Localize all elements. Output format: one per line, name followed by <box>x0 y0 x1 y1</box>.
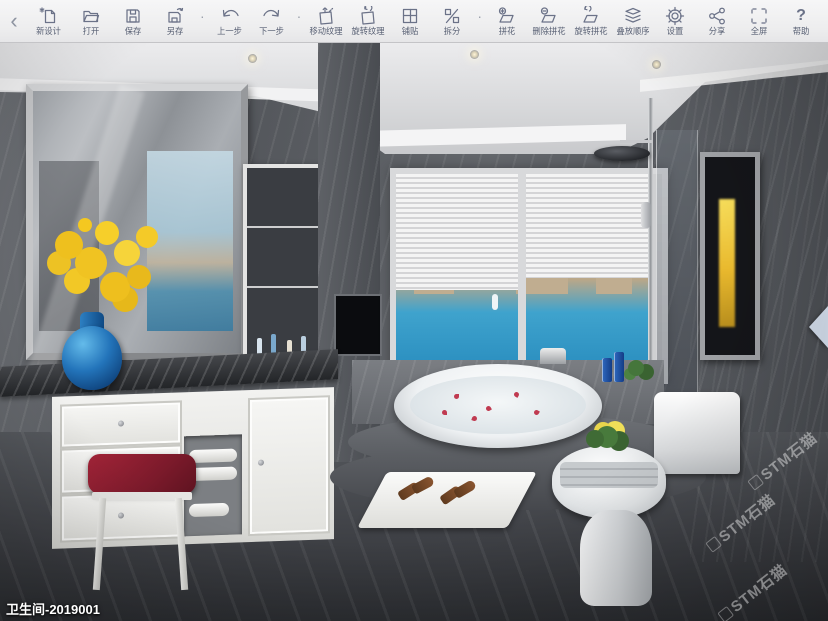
tv-inset <box>334 294 382 356</box>
stack-order-icon <box>622 5 644 26</box>
cabinet-shelf <box>247 286 321 288</box>
rotate-texture-icon <box>358 5 378 26</box>
rain-shower-head <box>594 146 650 161</box>
window-mullion <box>518 174 526 366</box>
toolbar-item-rotate-texture[interactable]: 旋转纹理 <box>347 0 389 42</box>
fountain <box>492 294 498 310</box>
toolbar-item-label: 另存 <box>167 26 184 36</box>
toolbar-item-label: 铺贴 <box>402 26 419 36</box>
toolbar-item-move-texture[interactable]: 移动纹理 <box>305 0 347 42</box>
mosaic-delete-icon <box>538 5 560 26</box>
wall-artwork <box>700 152 760 360</box>
fullscreen-icon <box>749 5 769 26</box>
toolbar-item-label: 移动纹理 <box>310 26 343 36</box>
toolbar-item-label: 删除拼花 <box>532 26 565 36</box>
shower-arm <box>620 140 652 143</box>
app-window: ‹ 新设计 打开 保存 另存 · <box>0 0 828 621</box>
blue-glass-bottle <box>614 352 624 382</box>
shower-pole <box>648 98 653 398</box>
towel-roll <box>189 503 229 517</box>
back-button[interactable]: ‹ <box>0 1 28 41</box>
yellow-flowers <box>78 218 92 232</box>
towel-roll <box>189 448 237 463</box>
towel-roll <box>189 466 237 481</box>
toolbar-item-label: 叠放顺序 <box>616 26 649 36</box>
tile-paste-icon <box>400 5 420 26</box>
toolbar-item-stack-order[interactable]: 叠放顺序 <box>612 0 654 42</box>
open-folder-icon <box>81 5 101 26</box>
shelf-plant <box>628 360 644 376</box>
toolbar-right-group: 设置 分享 全屏 ? 帮助 <box>654 0 828 42</box>
bottle <box>271 334 276 354</box>
toolbar-item-label: 打开 <box>83 26 100 36</box>
toolbar-item-mosaic-rotate[interactable]: 旋转拼花 <box>570 0 612 42</box>
toolbar-item-label: 帮助 <box>793 26 810 36</box>
toolbar-item-label: 旋转拼花 <box>574 26 607 36</box>
mirror-reflection-window <box>147 151 233 331</box>
toolbar-separator: · <box>293 8 306 34</box>
ceiling-light <box>470 50 479 59</box>
toolbar-item-save[interactable]: 保存 <box>112 0 154 42</box>
bottle <box>257 338 262 354</box>
save-icon <box>123 5 143 26</box>
toolbar-item-save-as[interactable]: 另存 <box>154 0 196 42</box>
render-canvas[interactable]: STM石猫 STM石猫 STM石猫 卫生间-2019001 <box>0 42 828 621</box>
vanity-drawer <box>60 400 182 448</box>
toolbar-item-tile-paste[interactable]: 铺贴 <box>389 0 431 42</box>
toolbar-item-undo[interactable]: 上一步 <box>209 0 251 42</box>
blue-vase <box>62 326 122 390</box>
settings-icon <box>665 5 685 26</box>
toolbar-item-mosaic-delete[interactable]: 删除拼花 <box>528 0 570 42</box>
mosaic-add-icon <box>496 5 518 26</box>
toolbar-item-label: 保存 <box>125 26 142 36</box>
toilet-base <box>580 510 652 606</box>
save-as-icon <box>165 5 185 26</box>
rose-petal <box>442 410 447 415</box>
bathtub-inner <box>410 376 586 434</box>
help-icon: ? <box>796 5 806 26</box>
toolbar-separator: · <box>473 8 486 34</box>
redo-icon <box>261 5 283 26</box>
rose-petal <box>454 394 459 399</box>
toolbar-item-split[interactable]: 拆分 <box>431 0 473 42</box>
toolbar-item-help[interactable]: ? 帮助 <box>780 0 822 42</box>
toolbar-item-fullscreen[interactable]: 全屏 <box>738 0 780 42</box>
undo-icon <box>219 5 241 26</box>
new-design-icon <box>39 5 59 26</box>
hand-shower <box>641 202 651 228</box>
cabinet-shelf <box>247 226 321 228</box>
toolbar-item-label: 旋转纹理 <box>352 26 385 36</box>
share-icon <box>707 5 727 26</box>
toolbar: ‹ 新设计 打开 保存 另存 · <box>0 0 828 43</box>
ceiling-light <box>652 60 661 69</box>
toolbar-item-label: 拆分 <box>444 26 461 36</box>
toolbar-item-label: 拼花 <box>499 26 516 36</box>
artwork-yellow-paint <box>719 199 735 327</box>
folded-towel <box>560 462 658 488</box>
mosaic-rotate-icon <box>580 5 602 26</box>
toolbar-item-label: 新设计 <box>37 26 62 36</box>
toolbar-item-open[interactable]: 打开 <box>70 0 112 42</box>
toilet-plant <box>586 430 604 448</box>
toolbar-separator: · <box>196 8 209 34</box>
ceiling-light <box>248 54 257 63</box>
mirror <box>26 84 248 360</box>
window-blinds-left <box>396 174 518 290</box>
move-texture-icon <box>316 5 336 26</box>
right-panel-expander[interactable] <box>809 306 828 348</box>
toolbar-item-redo[interactable]: 下一步 <box>251 0 293 42</box>
display-cabinet <box>243 164 325 360</box>
toolbar-item-settings[interactable]: 设置 <box>654 0 696 42</box>
toolbar-item-label: 下一步 <box>259 26 284 36</box>
stool-cushion <box>88 454 196 494</box>
tub-faucet <box>540 348 566 364</box>
toolbar-item-label: 全屏 <box>751 26 768 36</box>
window <box>390 168 668 384</box>
toolbar-item-mosaic-add[interactable]: 拼花 <box>486 0 528 42</box>
toolbar-item-label: 上一步 <box>217 26 242 36</box>
toolbar-item-label: 分享 <box>709 26 726 36</box>
window-blinds-right <box>526 174 650 278</box>
toilet-tank <box>654 392 740 474</box>
blue-glass-bottle <box>602 358 612 382</box>
split-icon <box>442 5 462 26</box>
vanity-door <box>248 395 330 536</box>
toolbar-item-new-design[interactable]: 新设计 <box>28 0 70 42</box>
toolbar-item-label: 设置 <box>667 26 684 36</box>
toolbar-item-share[interactable]: 分享 <box>696 0 738 42</box>
project-name-label: 卫生间-2019001 <box>6 599 100 618</box>
bathtub <box>394 364 602 448</box>
